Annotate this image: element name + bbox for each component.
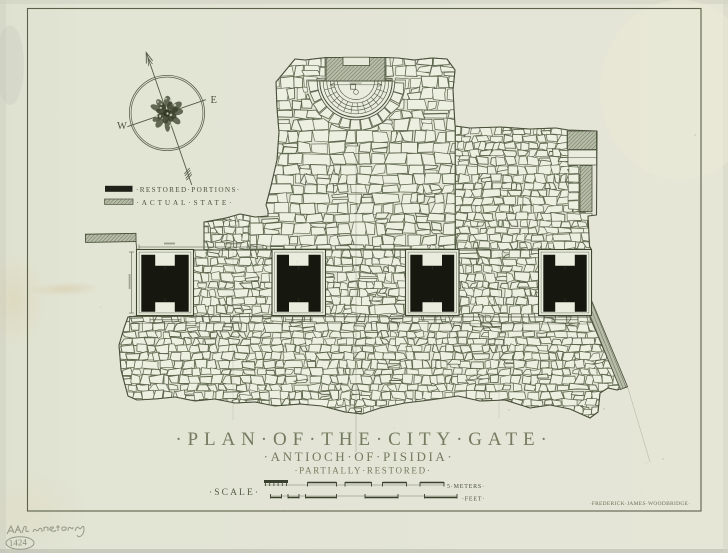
svg-text:W: W	[117, 121, 127, 132]
svg-text:5·METERS·: 5·METERS·	[447, 484, 485, 490]
svg-text:·SCALE·: ·SCALE·	[209, 488, 260, 498]
svg-text:·PLAN·OF·THE·CITY·GATE·: ·PLAN·OF·THE·CITY·GATE·	[175, 429, 552, 450]
svg-text:·ANTIOCH·OF·PISIDIA·: ·ANTIOCH·OF·PISIDIA·	[264, 449, 455, 464]
svg-text:·FEET·: ·FEET·	[462, 497, 485, 503]
svg-text:·FREDERICK·JAMES·WOODBRIDGE·: ·FREDERICK·JAMES·WOODBRIDGE·	[590, 501, 691, 507]
svg-text:·RESTORED·PORTIONS·: ·RESTORED·PORTIONS·	[136, 186, 241, 194]
svg-text:E: E	[211, 95, 217, 106]
svg-text:1424: 1424	[9, 537, 28, 548]
svg-text:·ACTUAL·STATE·: ·ACTUAL·STATE·	[137, 199, 235, 207]
svg-text:·PARTIALLY·RESTORED·: ·PARTIALLY·RESTORED·	[294, 466, 431, 476]
